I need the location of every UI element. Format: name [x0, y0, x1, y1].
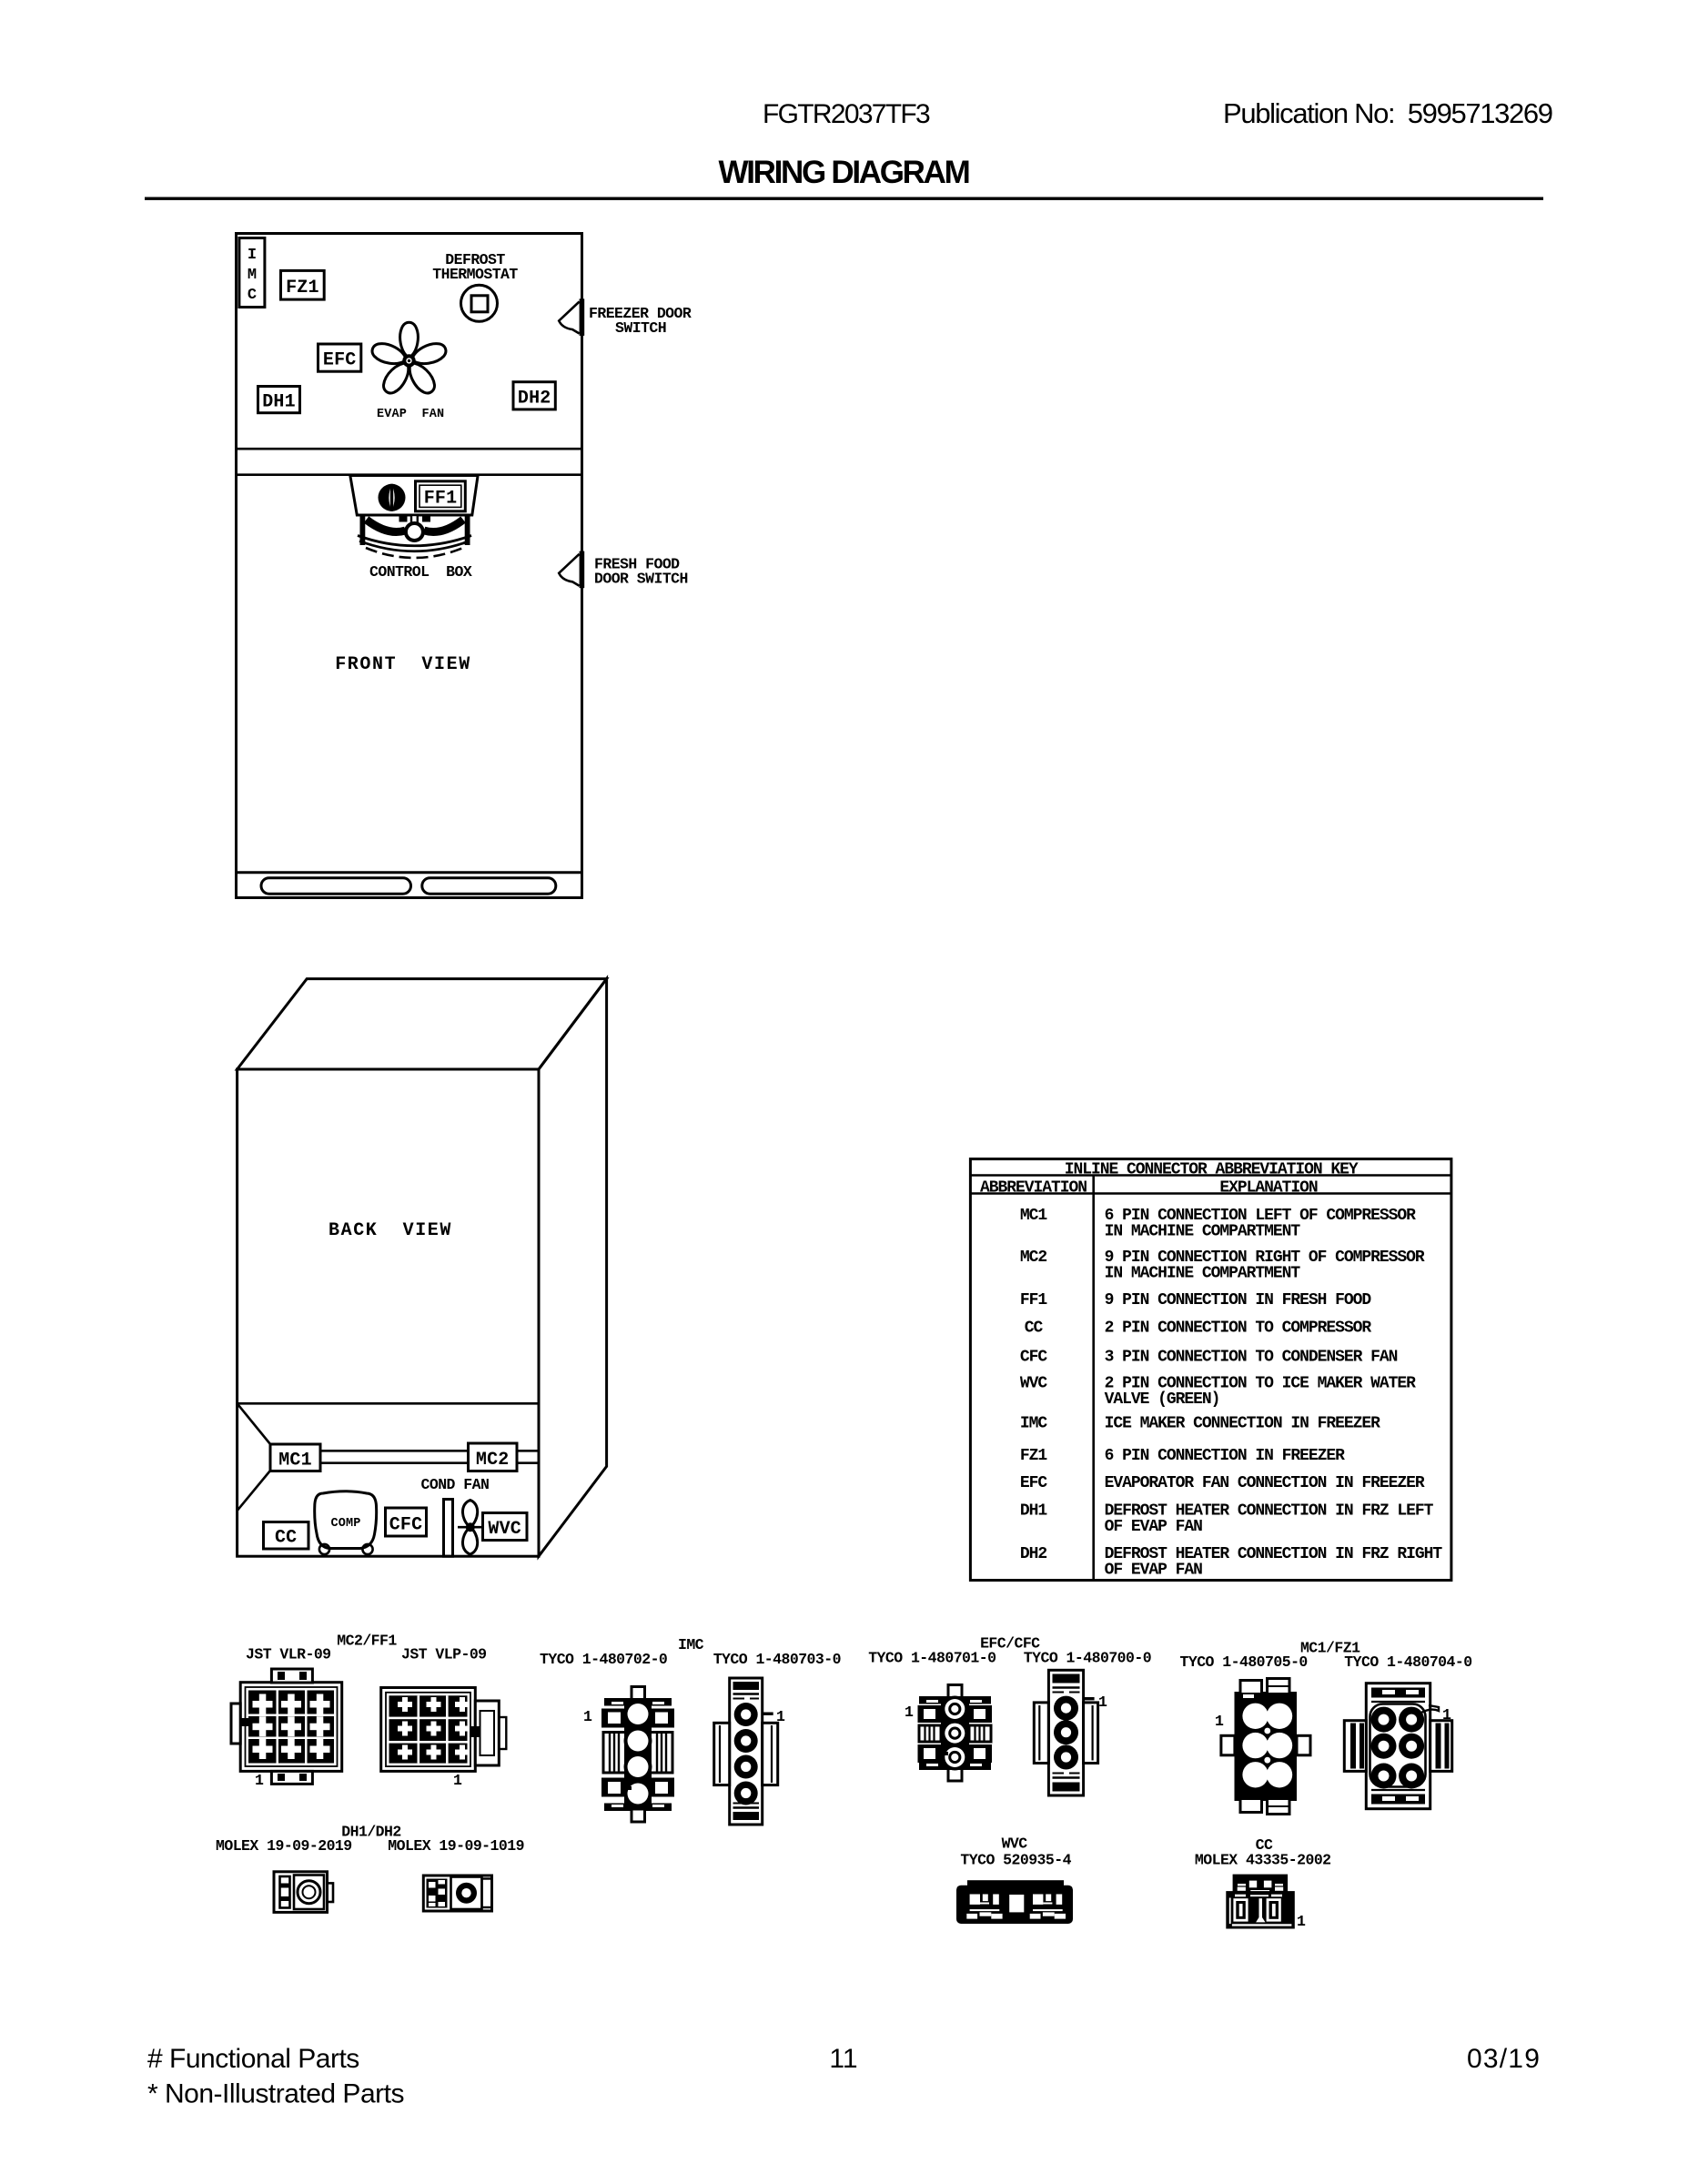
svg-text:2 PIN CONNECTION TO COMPRESSOR: 2 PIN CONNECTION TO COMPRESSOR — [1105, 1319, 1372, 1338]
svg-text:EXPLANATION: EXPLANATION — [1219, 1178, 1318, 1197]
svg-text:1: 1 — [583, 1708, 592, 1725]
svg-text:1: 1 — [453, 1772, 462, 1789]
svg-text:FZ1: FZ1 — [1020, 1447, 1048, 1465]
svg-text:1: 1 — [776, 1708, 785, 1725]
svg-text:CONTROL BOX: CONTROL BOX — [369, 563, 472, 581]
svg-text:CFC: CFC — [1020, 1349, 1048, 1367]
svg-text:* Non-Illustrated Parts: * Non-Illustrated Parts — [147, 2079, 404, 2109]
svg-text:JST VLR-09: JST VLR-09 — [246, 1646, 331, 1663]
svg-text:IMC: IMC — [1020, 1414, 1048, 1432]
svg-text:MC2: MC2 — [476, 1450, 510, 1471]
svg-text:Publication No: 5995713269: Publication No: 5995713269 — [1223, 97, 1552, 129]
svg-text:CFC: CFC — [389, 1515, 423, 1536]
svg-text:BACK VIEW: BACK VIEW — [329, 1220, 452, 1241]
svg-text:I: I — [248, 247, 257, 264]
svg-text:EVAPORATOR FAN CONNECTION IN F: EVAPORATOR FAN CONNECTION IN FREEZER — [1105, 1474, 1425, 1492]
svg-text:TYCO 520935-4: TYCO 520935-4 — [960, 1852, 1071, 1869]
svg-text:FZ1: FZ1 — [286, 278, 319, 298]
svg-text:6 PIN CONNECTION IN FREEZER: 6 PIN CONNECTION IN FREEZER — [1105, 1447, 1346, 1465]
svg-text:TYCO 1-480701-0: TYCO 1-480701-0 — [868, 1650, 996, 1667]
svg-text:DH1: DH1 — [1020, 1502, 1048, 1521]
svg-text:IMC: IMC — [678, 1636, 704, 1653]
svg-text:WIRING DIAGRAM: WIRING DIAGRAM — [719, 155, 969, 190]
svg-text:FF1: FF1 — [1020, 1291, 1048, 1309]
svg-text:1: 1 — [1215, 1713, 1224, 1730]
svg-text:FF1: FF1 — [424, 489, 458, 510]
svg-text:C: C — [248, 287, 257, 304]
svg-text:MC1: MC1 — [278, 1451, 312, 1471]
svg-text:SWITCH: SWITCH — [615, 319, 666, 337]
svg-text:WVC: WVC — [488, 1519, 521, 1540]
svg-text:OF EVAP FAN: OF EVAP FAN — [1105, 1518, 1203, 1536]
svg-text:VALVE (GREEN): VALVE (GREEN) — [1105, 1390, 1220, 1409]
svg-text:THERMOSTAT: THERMOSTAT — [432, 266, 518, 283]
svg-text:MC1: MC1 — [1020, 1207, 1048, 1225]
svg-text:JST VLP-09: JST VLP-09 — [401, 1646, 487, 1663]
svg-text:CC: CC — [275, 1528, 297, 1549]
svg-text:MC2/FF1: MC2/FF1 — [337, 1633, 397, 1650]
svg-text:DH2: DH2 — [1020, 1545, 1047, 1563]
svg-text:MOLEX 19-09-2019: MOLEX 19-09-2019 — [216, 1837, 352, 1855]
svg-text:OF EVAP FAN: OF EVAP FAN — [1105, 1562, 1203, 1580]
svg-text:EFC: EFC — [323, 350, 357, 371]
svg-text:3 PIN CONNECTION TO CONDENSER: 3 PIN CONNECTION TO CONDENSER FAN — [1105, 1349, 1398, 1367]
svg-text:1: 1 — [1098, 1694, 1107, 1711]
svg-text:TYCO 1-480703-0: TYCO 1-480703-0 — [713, 1651, 841, 1668]
svg-text:TYCO 1-480702-0: TYCO 1-480702-0 — [540, 1651, 667, 1668]
svg-text:11: 11 — [829, 2044, 857, 2074]
svg-text:CC: CC — [1025, 1319, 1044, 1338]
svg-text:1: 1 — [1442, 1706, 1451, 1724]
svg-text:DH2: DH2 — [518, 389, 551, 409]
svg-text:1: 1 — [905, 1704, 914, 1721]
svg-text:03/19: 03/19 — [1467, 2044, 1541, 2074]
svg-text:IN MACHINE COMPARTMENT: IN MACHINE COMPARTMENT — [1105, 1223, 1301, 1241]
svg-text:EVAP FAN: EVAP FAN — [377, 408, 444, 421]
svg-text:DOOR SWITCH: DOOR SWITCH — [594, 571, 688, 588]
svg-text:# Functional Parts: # Functional Parts — [147, 2044, 359, 2074]
svg-text:1: 1 — [1297, 1913, 1306, 1930]
svg-text:TYCO 1-480704-0: TYCO 1-480704-0 — [1344, 1653, 1471, 1671]
svg-text:FGTR2037TF3: FGTR2037TF3 — [763, 99, 930, 129]
svg-text:ICE MAKER CONNECTION IN FREEZE: ICE MAKER CONNECTION IN FREEZER — [1105, 1414, 1381, 1432]
svg-text:DH1: DH1 — [262, 392, 296, 413]
svg-text:INLINE CONNECTOR ABBREVIATION: INLINE CONNECTOR ABBREVIATION KEY — [1065, 1161, 1359, 1179]
svg-text:M: M — [248, 267, 257, 284]
svg-text:TYCO 1-480700-0: TYCO 1-480700-0 — [1024, 1650, 1151, 1667]
svg-text:FRONT VIEW: FRONT VIEW — [335, 654, 471, 675]
svg-text:EFC: EFC — [1020, 1474, 1048, 1492]
svg-text:MOLEX 43335-2002: MOLEX 43335-2002 — [1195, 1852, 1331, 1869]
svg-text:MOLEX 19-09-1019: MOLEX 19-09-1019 — [388, 1837, 524, 1855]
svg-text:WVC: WVC — [1020, 1374, 1048, 1392]
svg-text:COMP: COMP — [330, 1517, 360, 1531]
svg-text:COND FAN: COND FAN — [421, 1476, 490, 1493]
svg-text:IN MACHINE COMPARTMENT: IN MACHINE COMPARTMENT — [1105, 1264, 1301, 1282]
svg-text:ABBREVIATION: ABBREVIATION — [980, 1178, 1087, 1197]
svg-text:MC2: MC2 — [1020, 1249, 1047, 1267]
svg-text:WVC: WVC — [1002, 1835, 1028, 1853]
svg-text:1: 1 — [255, 1772, 264, 1789]
svg-text:TYCO 1-480705-0: TYCO 1-480705-0 — [1180, 1653, 1308, 1671]
svg-text:9 PIN CONNECTION IN FRESH FOOD: 9 PIN CONNECTION IN FRESH FOOD — [1105, 1291, 1372, 1309]
